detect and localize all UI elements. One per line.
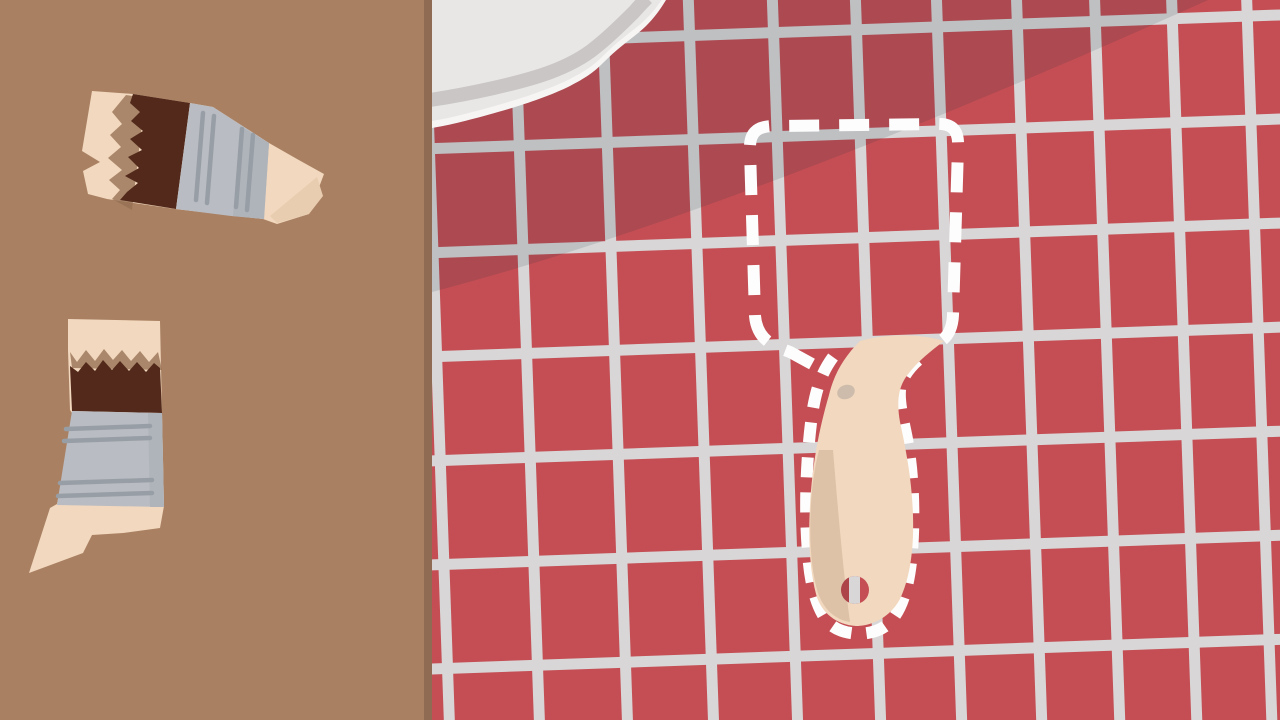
game-stage <box>0 0 1280 720</box>
scene-canvas <box>0 0 1280 720</box>
tray-edge-shadow <box>424 0 432 720</box>
tray-panel <box>0 0 432 720</box>
tray-background <box>0 0 432 720</box>
